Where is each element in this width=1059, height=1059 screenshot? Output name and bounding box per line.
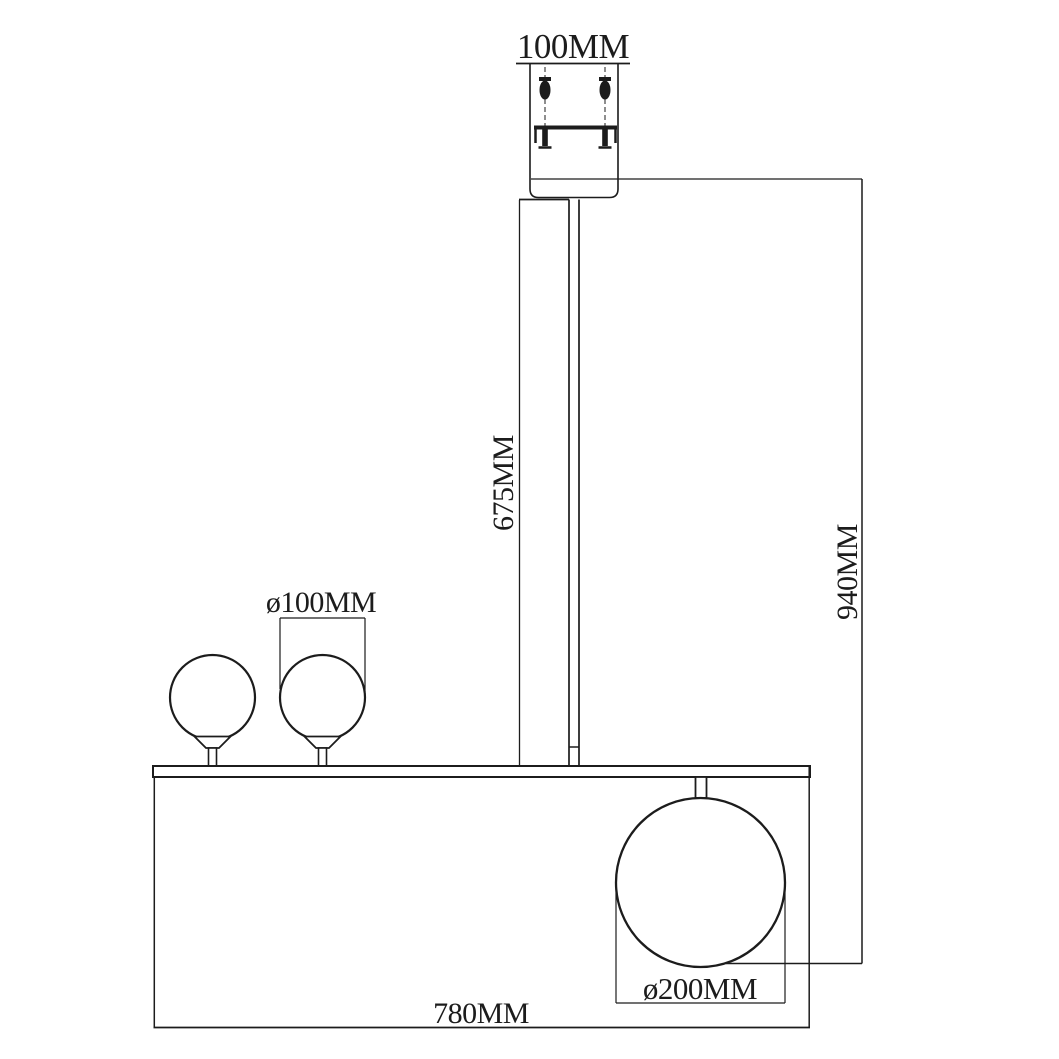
anchor-flange-icon — [599, 77, 611, 81]
anchor-body-icon — [600, 81, 611, 100]
small-globe-2-stem — [319, 748, 327, 767]
small-globe-2-sphere — [280, 655, 365, 740]
small-globe-1 — [170, 655, 255, 767]
small-globe-1-collar — [195, 737, 231, 749]
wall-anchor-left — [539, 77, 551, 100]
hanging-rod — [569, 200, 579, 767]
canopy-assembly — [530, 64, 862, 198]
large-globe-diameter-label: ø200MM — [643, 971, 757, 1006]
small-globe-1-sphere — [170, 655, 255, 740]
fixture-bar — [153, 766, 810, 777]
dimension-canopy-width: 100MM — [516, 27, 630, 66]
technical-drawing-page: 100MM — [0, 0, 1059, 1059]
mounting-screw-right — [599, 127, 612, 148]
wall-anchor-right — [599, 77, 611, 100]
dimension-rod-length: 675MM — [487, 200, 569, 767]
rod-length-label: 675MM — [487, 435, 520, 531]
mounting-screw-left — [539, 127, 552, 148]
anchor-flange-icon — [539, 77, 551, 81]
large-globe — [616, 777, 785, 967]
fixture-width-label: 780MM — [433, 997, 529, 1030]
small-globe-2 — [280, 655, 365, 767]
screw-shaft-icon — [602, 127, 608, 146]
large-globe-sphere — [616, 798, 785, 967]
overall-height-label: 940MM — [831, 524, 864, 620]
screw-shaft-icon — [542, 127, 548, 146]
small-globe-1-stem — [209, 748, 217, 767]
small-globe-diameter-label: ø100MM — [266, 586, 376, 619]
horizontal-bar — [153, 766, 810, 777]
canopy-width-label: 100MM — [517, 27, 630, 66]
lamp-dimension-drawing: 100MM — [0, 0, 1059, 1059]
large-globe-stem — [696, 777, 707, 798]
small-globe-2-collar — [305, 737, 341, 749]
anchor-body-icon — [540, 81, 551, 100]
